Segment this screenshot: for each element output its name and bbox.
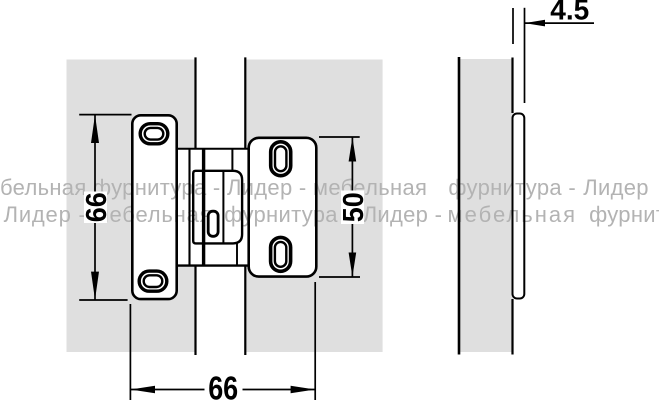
svg-text:4.5: 4.5 (550, 0, 589, 27)
svg-text:фурнитура -: фурнитура - (224, 202, 352, 227)
svg-text:66: 66 (208, 369, 238, 400)
svg-text:фурнитура: фурнитура (589, 202, 659, 227)
svg-text:Лидер -: Лидер - (363, 202, 443, 227)
svg-text:Лидер: Лидер (583, 175, 649, 200)
svg-text:50: 50 (338, 192, 370, 222)
svg-text:66: 66 (81, 192, 113, 222)
